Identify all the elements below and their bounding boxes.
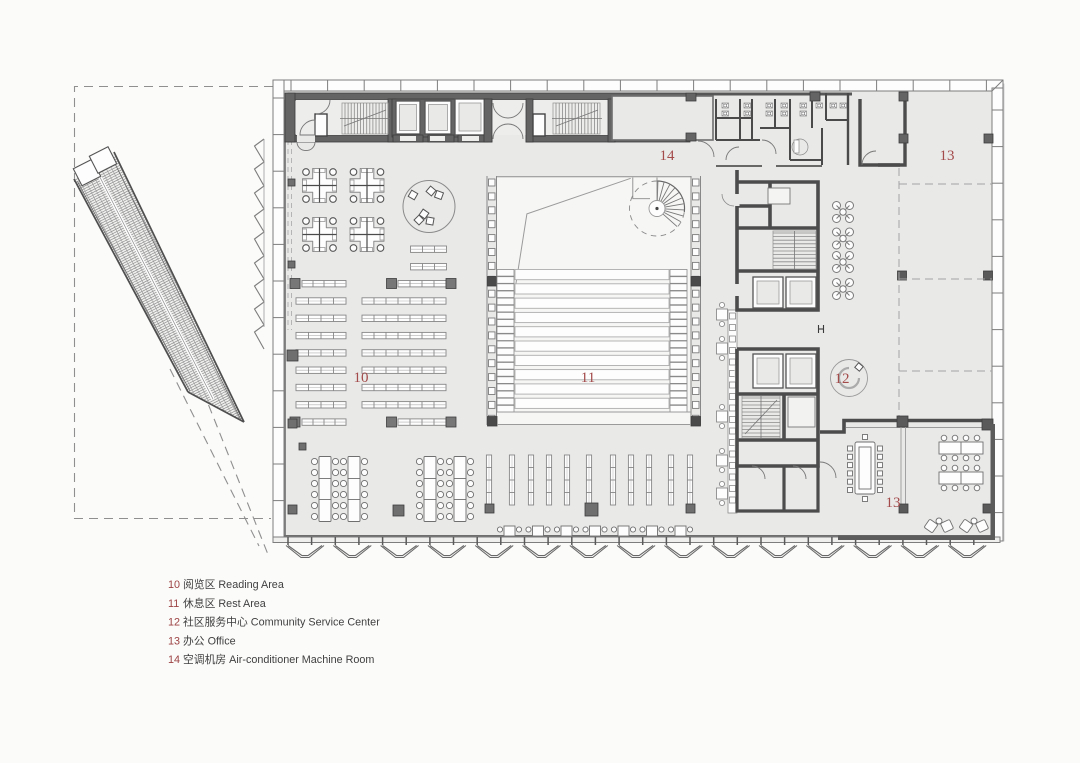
svg-text:社区服务中心 Community Service Cente: 社区服务中心 Community Service Center — [183, 615, 380, 629]
svg-text:13: 13 — [886, 495, 901, 511]
svg-text:14: 14 — [168, 654, 180, 666]
svg-text:阅览区 Reading Area: 阅览区 Reading Area — [183, 578, 284, 591]
svg-text:空调机房 Air-conditioner Machine R: 空调机房 Air-conditioner Machine Room — [183, 652, 374, 666]
svg-text:12: 12 — [168, 617, 180, 629]
svg-text:10: 10 — [354, 370, 369, 386]
svg-text:14: 14 — [660, 148, 676, 164]
svg-text:13: 13 — [940, 148, 955, 164]
svg-text:13: 13 — [168, 635, 180, 647]
svg-text:办公 Office: 办公 Office — [183, 634, 236, 647]
svg-text:休息区 Rest Area: 休息区 Rest Area — [183, 596, 266, 610]
svg-text:11: 11 — [581, 370, 595, 386]
svg-text:10: 10 — [168, 579, 180, 591]
svg-text:11: 11 — [168, 598, 179, 610]
svg-text:12: 12 — [835, 371, 850, 387]
